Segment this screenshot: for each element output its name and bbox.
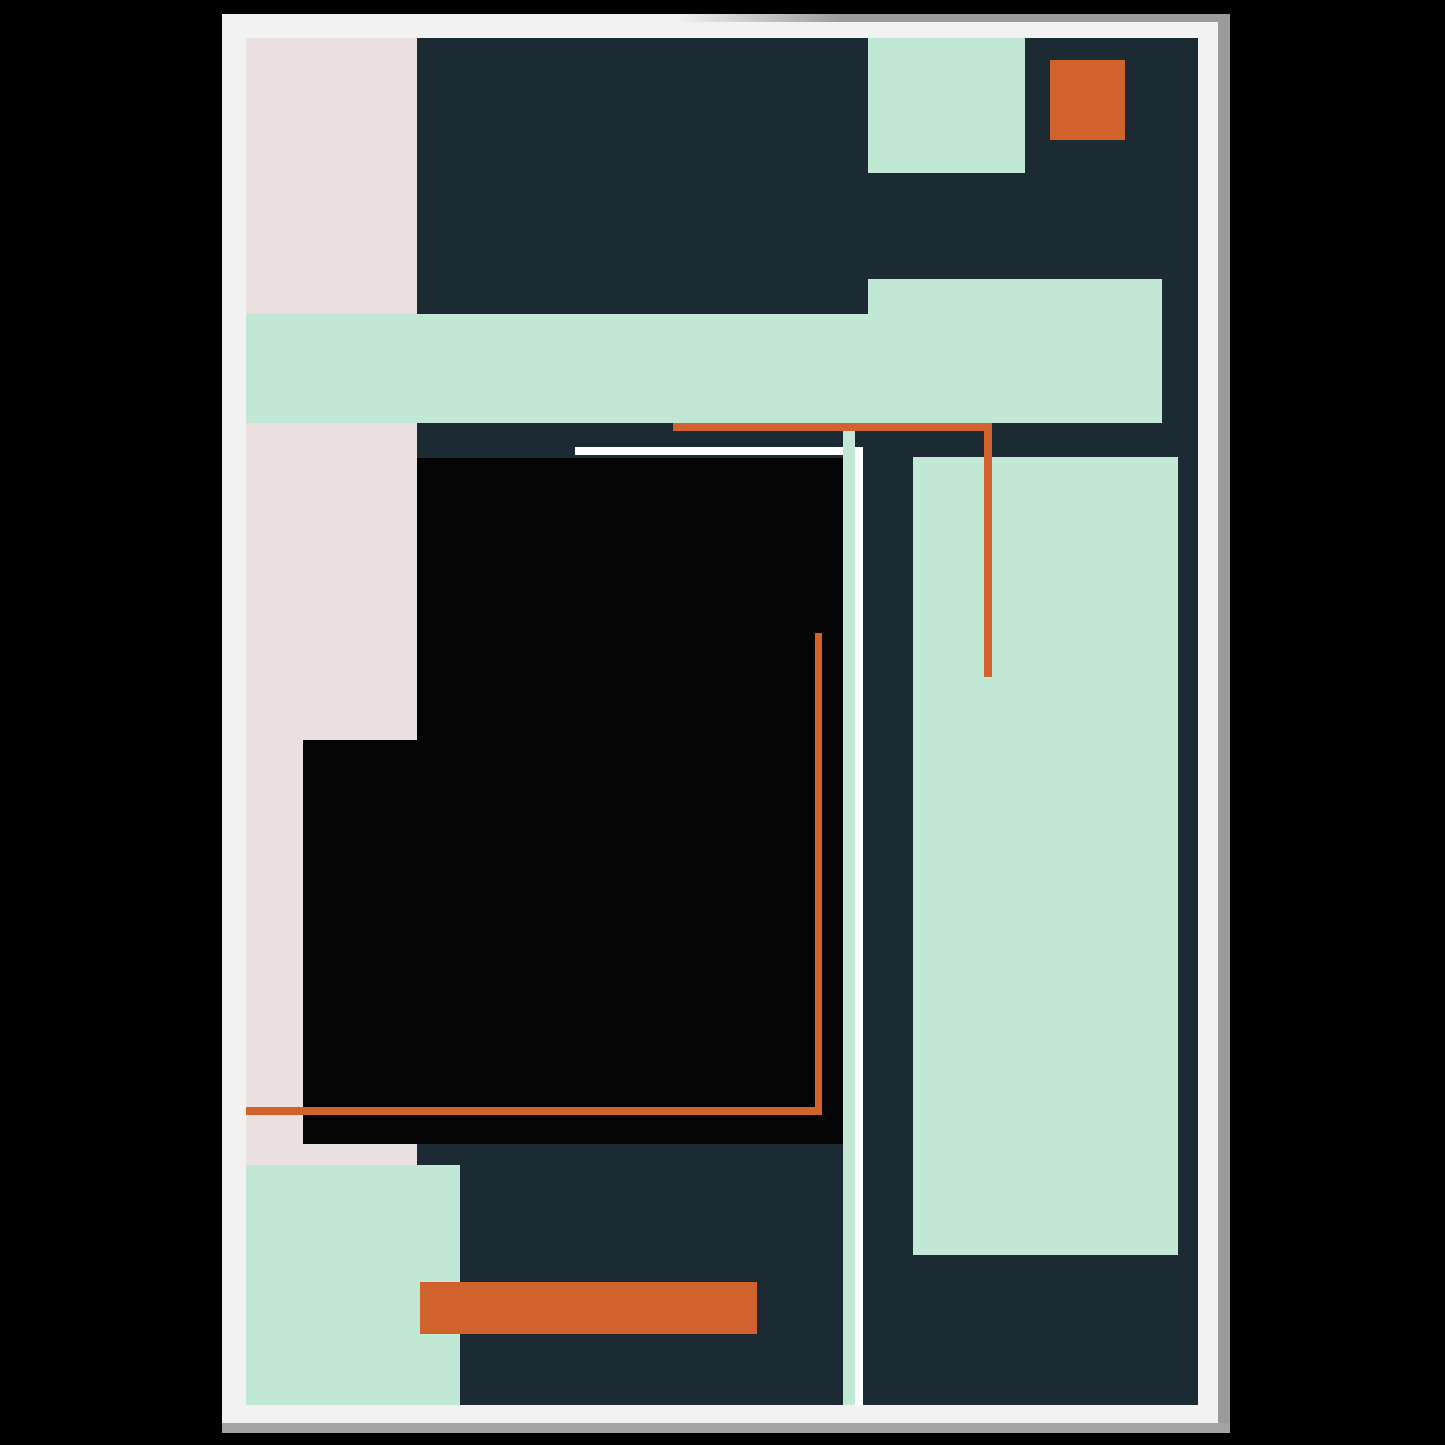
- scene-background: [0, 0, 1445, 1445]
- poster-canvas: [246, 38, 1198, 1405]
- mint-top-right-rect: [868, 38, 1025, 173]
- orange-horizontal-line-bottom: [246, 1107, 822, 1115]
- orange-vertical-line-right: [984, 423, 992, 677]
- mint-vertical-line: [843, 424, 855, 1405]
- frame-bottom-shadow-edge: [222, 1423, 1230, 1433]
- orange-top-square: [1050, 60, 1125, 140]
- black-square-main: [417, 458, 843, 1144]
- orange-horizontal-line-top: [673, 423, 992, 431]
- frame-right-shadow-edge: [1218, 14, 1230, 1433]
- orange-vertical-line-inner: [815, 633, 822, 1115]
- mint-tall-right-rect: [913, 457, 1178, 1255]
- white-horizontal-line: [575, 447, 843, 455]
- poster-frame: [222, 14, 1230, 1433]
- black-square-left-step: [303, 740, 417, 1144]
- white-vertical-line: [855, 447, 863, 1405]
- mint-band-right-extension: [868, 279, 1162, 423]
- frame-top-shadow-edge: [676, 14, 1230, 22]
- orange-bottom-bar: [420, 1282, 757, 1334]
